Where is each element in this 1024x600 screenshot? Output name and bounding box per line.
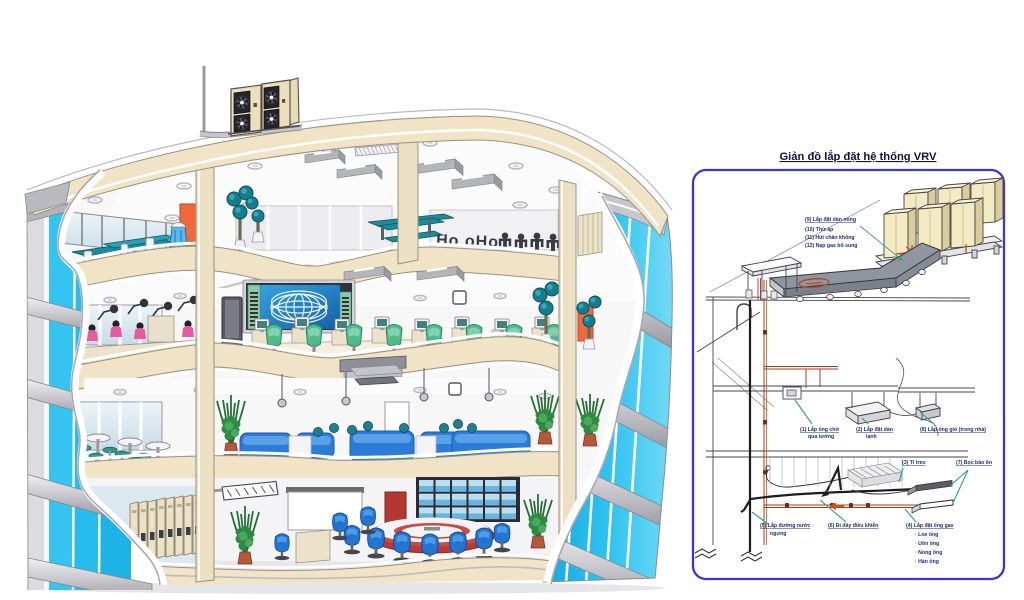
svg-text:(7) Bọc bảo ôn: (7) Bọc bảo ôn xyxy=(956,460,992,466)
svg-text:(12) Nạp gas bổ sung: (12) Nạp gas bổ sung xyxy=(805,242,857,249)
svg-text:(9) Lắp đặt dàn nóng: (9) Lắp đặt dàn nóng xyxy=(805,216,856,223)
svg-text:(11) Hút chân không: (11) Hút chân không xyxy=(805,235,855,241)
svg-text:· Loe ống: · Loe ống xyxy=(915,531,938,538)
svg-text:(10) Thử áp: (10) Thử áp xyxy=(805,227,833,233)
svg-text:(2) Lắp đặt dàn: (2) Lắp đặt dàn xyxy=(856,426,893,433)
svg-text:Giản đồ lắp đặt hệ thống VRV: Giản đồ lắp đặt hệ thống VRV xyxy=(779,150,937,163)
svg-text:lạnh: lạnh xyxy=(866,434,877,440)
svg-text:· Uốn ống: · Uốn ống xyxy=(915,540,939,547)
svg-text:(1) Lắp ống chờ: (1) Lắp ống chờ xyxy=(800,426,839,433)
svg-text:· Hàn ống: · Hàn ống xyxy=(915,558,939,565)
svg-text:(4) Lắp đặt ống gas: (4) Lắp đặt ống gas xyxy=(906,522,954,529)
svg-text:ngưng: ngưng xyxy=(770,531,786,537)
svg-text:(8) Lắp ống gió (trong nhà): (8) Lắp ống gió (trong nhà) xyxy=(920,426,986,433)
svg-text:(5) Lắp đường nước: (5) Lắp đường nước xyxy=(760,522,810,529)
svg-text:· Nong ống: · Nong ống xyxy=(915,549,942,556)
svg-text:(6) Đi dây điều khiển: (6) Đi dây điều khiển xyxy=(828,522,878,529)
svg-text:qua tường: qua tường xyxy=(808,434,834,440)
svg-text:(3) Ti treo: (3) Ti treo xyxy=(902,460,926,466)
